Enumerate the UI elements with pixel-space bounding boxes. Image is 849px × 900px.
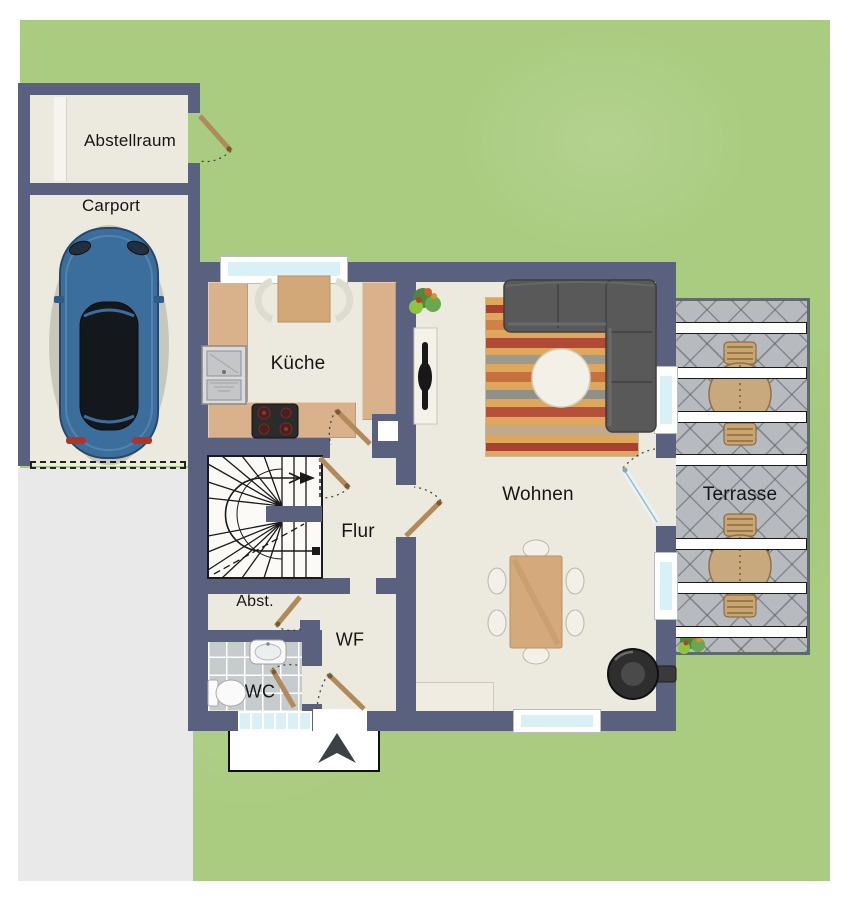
terrace-furniture: [675, 301, 813, 658]
room-label-abst: Abst.: [236, 593, 273, 611]
sideboard: [412, 682, 494, 712]
wall: [302, 642, 322, 666]
entrance-porch: [228, 727, 380, 772]
room-label-terrasse: Terrasse: [703, 484, 777, 506]
room-label-kueche: Küche: [271, 353, 326, 375]
floor-plan: Abstellraum Carport Küche Wohnen Flur Ab…: [0, 0, 849, 900]
front-door-opening: [313, 709, 367, 731]
room-label-abstellraum: Abstellraum: [84, 131, 176, 151]
living-window-south-glass: [521, 715, 593, 727]
room-label-wf: WF: [336, 630, 364, 651]
wall: [208, 438, 330, 458]
living-window-lower-glass: [660, 562, 672, 610]
pergola-beam: [675, 322, 807, 334]
room-label-wc: WC: [245, 682, 275, 703]
room-label-wohnen: Wohnen: [502, 484, 574, 506]
terrace-door-opening: [656, 458, 676, 526]
glass-block-window: [238, 711, 312, 731]
room-label-flur: Flur: [341, 521, 375, 543]
pergola-beam: [675, 411, 807, 423]
pergola-beam: [675, 626, 807, 638]
driveway: [18, 468, 193, 881]
terrace-table-group-1: [709, 342, 771, 445]
wall: [300, 620, 320, 630]
terrace-area: [672, 298, 810, 655]
carport-open-edge: [30, 461, 186, 469]
terrace-table-group-2: [709, 514, 771, 617]
wall: [18, 95, 30, 466]
wall: [188, 95, 200, 113]
wall: [188, 262, 208, 731]
pergola-beam: [675, 454, 807, 466]
kitchen-counter-bottom: [208, 402, 356, 438]
pergola-beam: [675, 367, 807, 379]
rug: [486, 298, 638, 456]
wall: [396, 537, 416, 711]
wall: [208, 578, 350, 594]
wall: [18, 83, 200, 95]
carport-floor: [30, 195, 188, 466]
storage-shelf: [54, 97, 67, 181]
kitchen-window-glass: [228, 262, 340, 276]
kitchen-counter-right: [362, 282, 396, 420]
pergola-beam: [675, 582, 807, 594]
wall: [196, 630, 322, 642]
wall: [376, 578, 396, 594]
living-window-upper-glass: [660, 376, 672, 424]
pergola-beam: [675, 538, 807, 550]
wall: [30, 183, 188, 195]
room-label-carport: Carport: [82, 196, 140, 216]
wall-niche: [378, 421, 398, 441]
